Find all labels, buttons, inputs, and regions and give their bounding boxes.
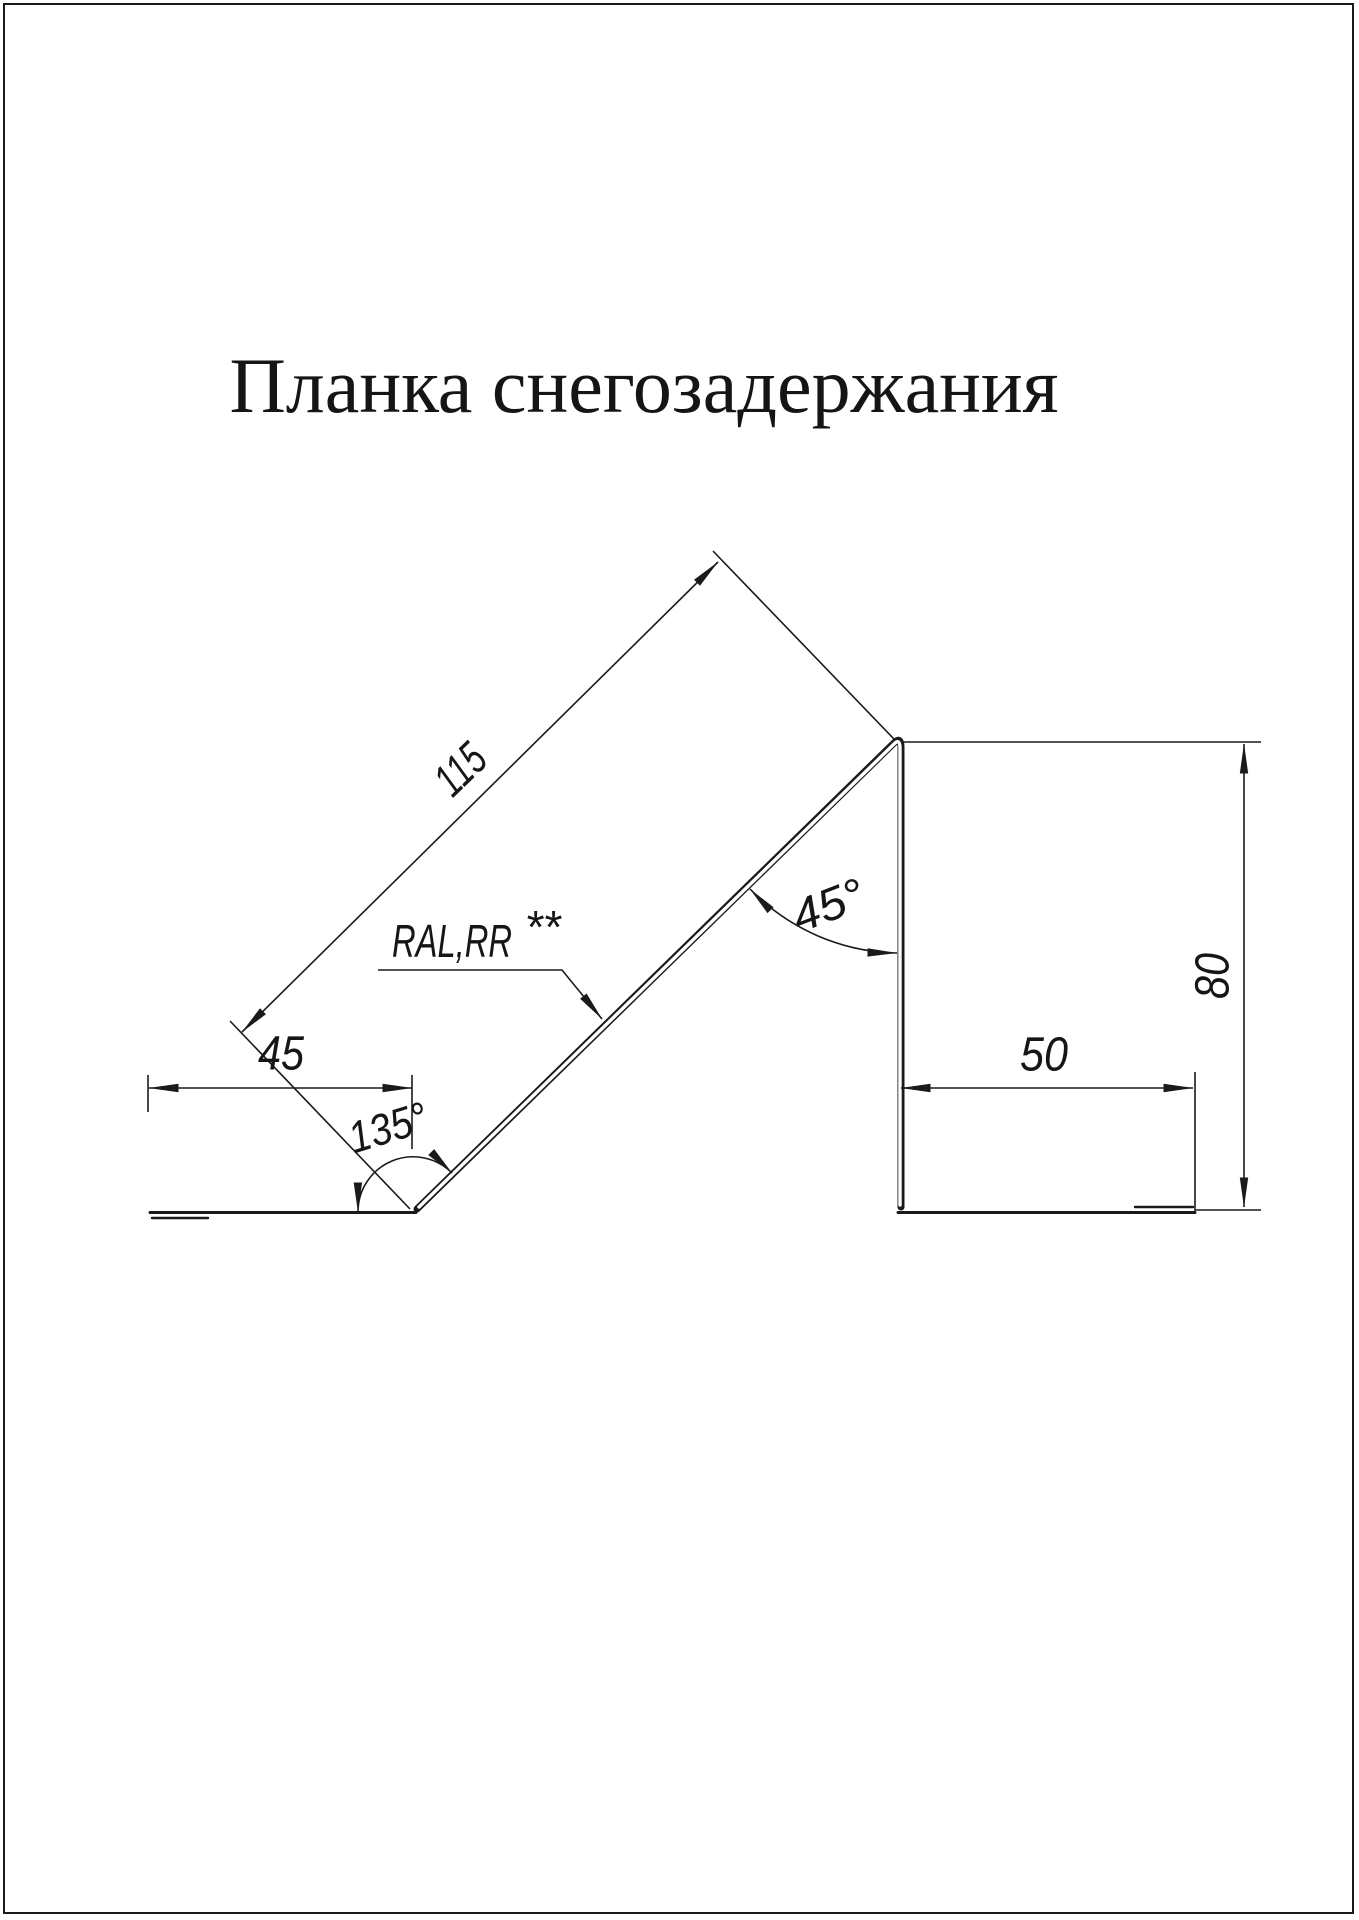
dim-50-label: 50	[1020, 1029, 1068, 1082]
dim-115-ext-top	[713, 551, 894, 739]
dim-50	[901, 1072, 1195, 1213]
dim-115	[230, 551, 894, 1209]
material-label-leader	[378, 970, 602, 1019]
dim-80-label: 80	[1187, 953, 1240, 999]
drawing-sheet: Планка снегозадержания 115	[0, 0, 1359, 1920]
dim-115-label: 115	[423, 732, 497, 806]
material-label: RAL,RR **	[392, 901, 563, 967]
profile-drawing: 115 45 50 80 45° 135°	[0, 0, 1359, 1920]
material-leader-line	[378, 970, 602, 1019]
material-label-text: RAL,RR	[392, 915, 512, 967]
angle-45-label: 45°	[784, 867, 872, 942]
material-label-superscript: **	[525, 901, 563, 953]
dim-45-label: 45	[258, 1028, 304, 1081]
profile-outline	[150, 740, 1195, 1218]
angle-135-label: 135°	[343, 1093, 434, 1163]
